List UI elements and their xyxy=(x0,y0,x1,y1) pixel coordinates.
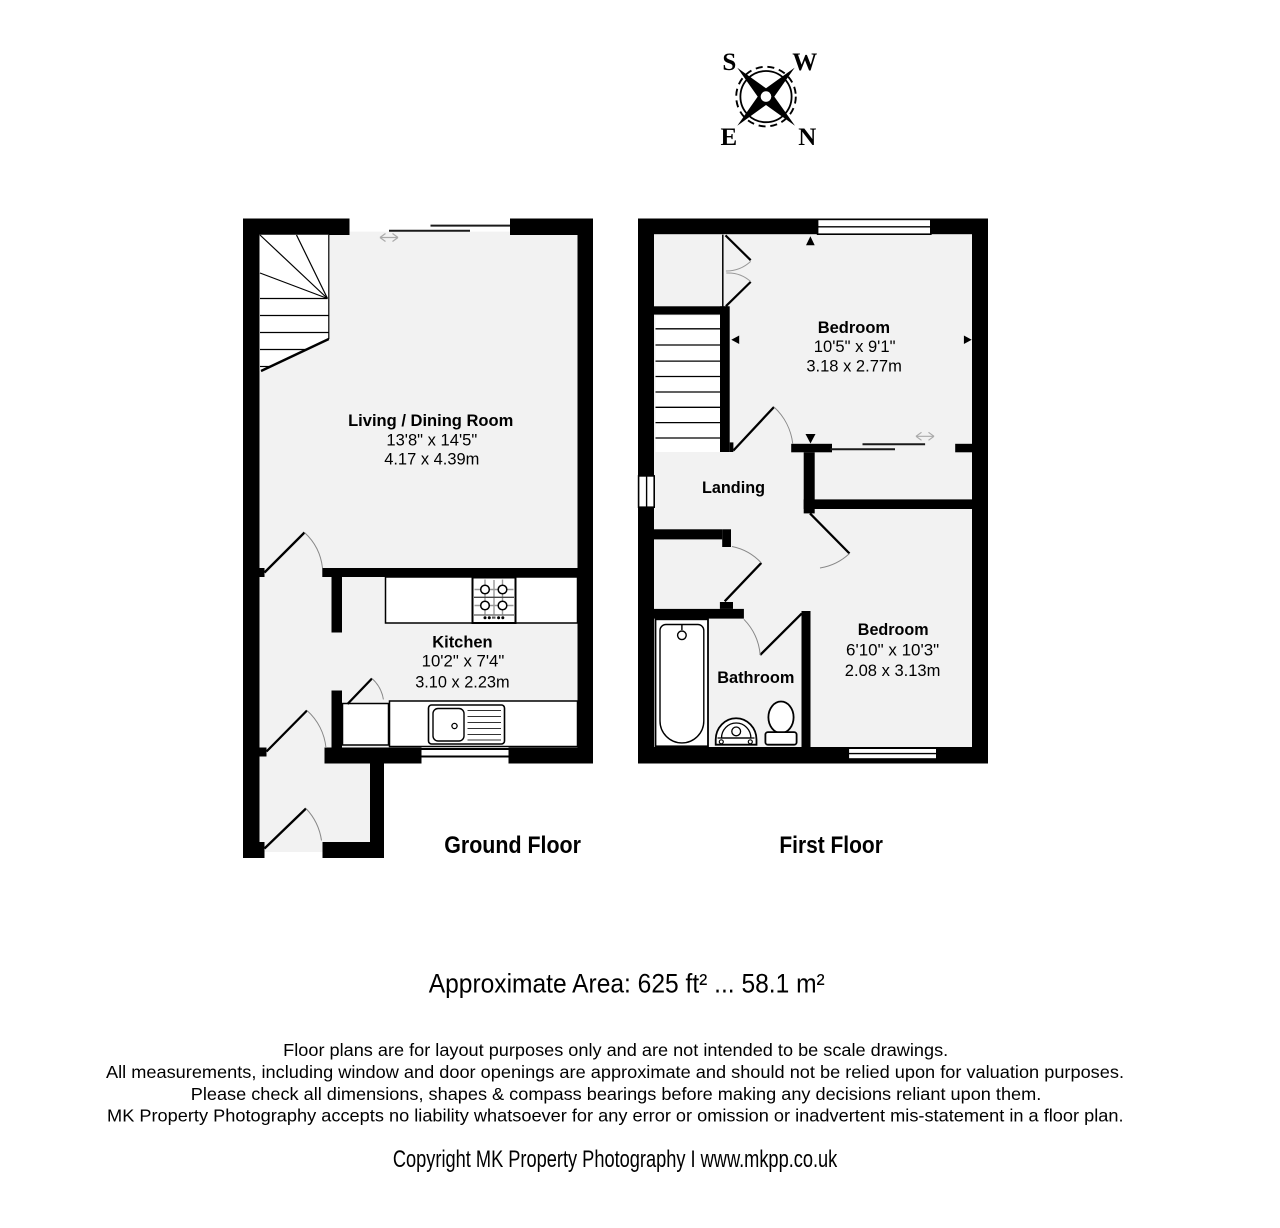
svg-text:First Floor: First Floor xyxy=(779,832,883,859)
svg-text:Ground Floor: Ground Floor xyxy=(444,832,581,859)
svg-text:Bedroom: Bedroom xyxy=(818,318,890,337)
svg-text:Landing: Landing xyxy=(702,478,765,497)
svg-text:MK Property Photography accept: MK Property Photography accepts no liabi… xyxy=(107,1106,1124,1126)
svg-text:6'10" x 10'3": 6'10" x 10'3" xyxy=(846,640,939,659)
svg-text:Copyright MK Property Photogra: Copyright MK Property Photography I www.… xyxy=(393,1146,838,1173)
svg-text:S: S xyxy=(722,49,736,76)
svg-text:N: N xyxy=(798,124,816,151)
svg-text:10'5" x 9'1": 10'5" x 9'1" xyxy=(814,337,896,356)
svg-text:4.17 x 4.39m: 4.17 x 4.39m xyxy=(384,450,479,469)
svg-text:2.08 x 3.13m: 2.08 x 3.13m xyxy=(845,661,941,680)
svg-text:10'2" x 7'4": 10'2" x 7'4" xyxy=(422,652,505,671)
svg-text:3.18 x 2.77m: 3.18 x 2.77m xyxy=(806,357,902,376)
svg-text:3.10 x 2.23m: 3.10 x 2.23m xyxy=(415,673,509,692)
svg-text:W: W xyxy=(792,49,817,76)
svg-text:Approximate Area: 625 ft² ...: Approximate Area: 625 ft² ... 58.1 m² xyxy=(429,968,825,998)
svg-text:Floor plans are for layout pur: Floor plans are for layout purposes only… xyxy=(283,1040,948,1060)
svg-text:Living / Dining Room: Living / Dining Room xyxy=(348,411,513,430)
svg-text:E: E xyxy=(721,124,738,151)
svg-text:All measurements, including wi: All measurements, including window and d… xyxy=(106,1062,1124,1082)
svg-text:Bathroom: Bathroom xyxy=(717,668,794,687)
svg-text:Please check all dimensions, s: Please check all dimensions, shapes & co… xyxy=(191,1084,1042,1104)
svg-text:Kitchen: Kitchen xyxy=(432,632,492,651)
svg-text:13'8" x 14'5": 13'8" x 14'5" xyxy=(386,430,477,449)
svg-text:Bedroom: Bedroom xyxy=(858,620,929,639)
